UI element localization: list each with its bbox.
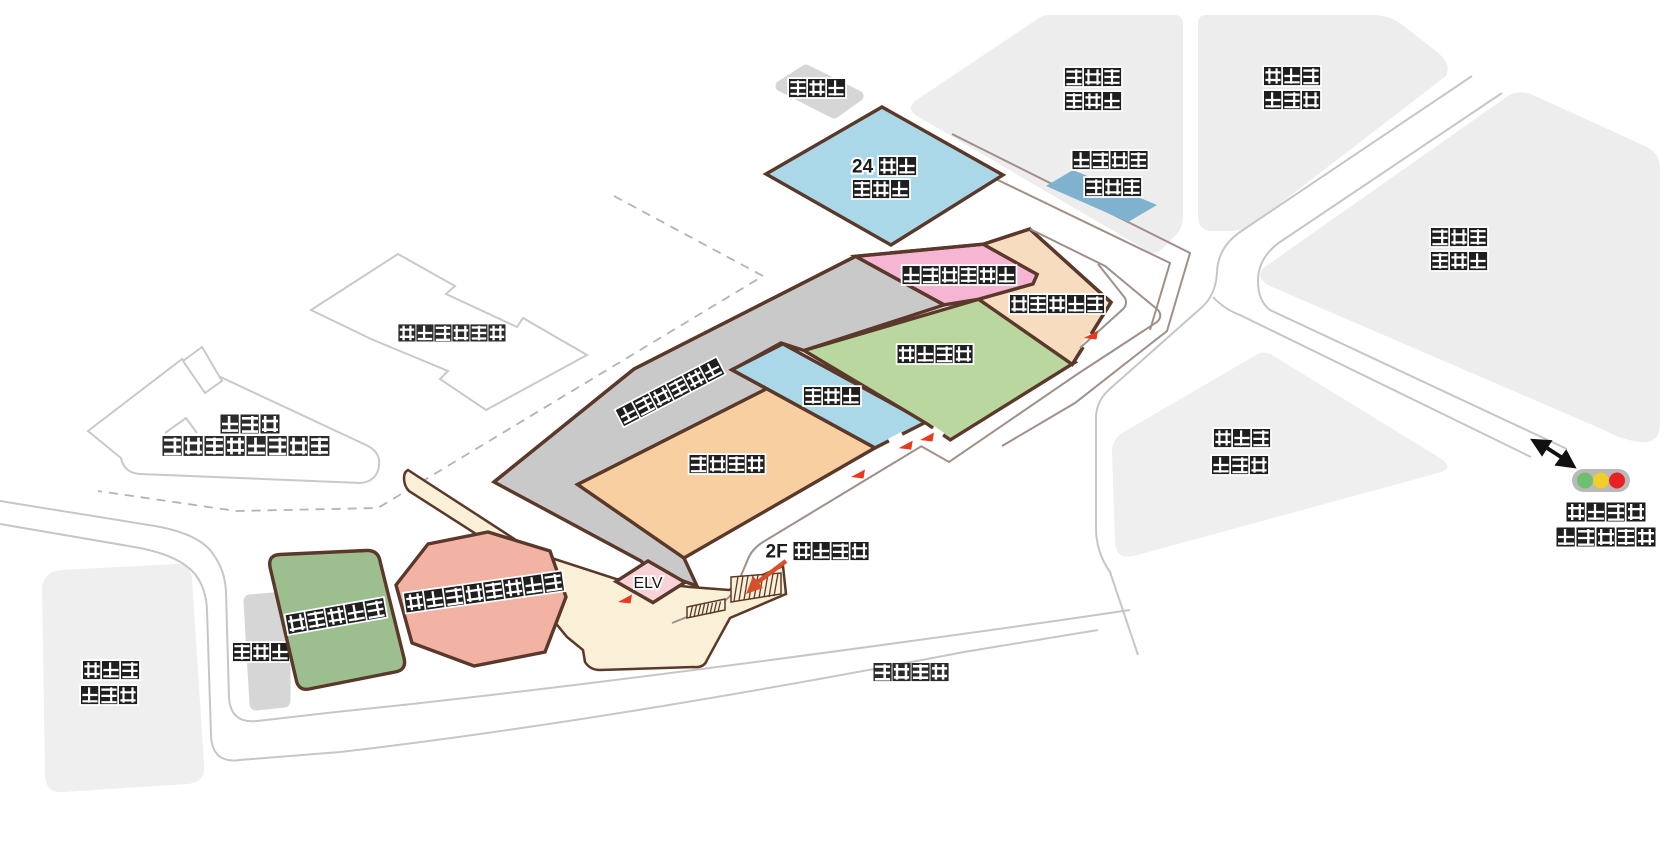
- svg-text:ELV: ELV: [633, 575, 662, 592]
- svg-text:2F: 2F: [766, 542, 788, 563]
- svg-text:24: 24: [852, 157, 874, 178]
